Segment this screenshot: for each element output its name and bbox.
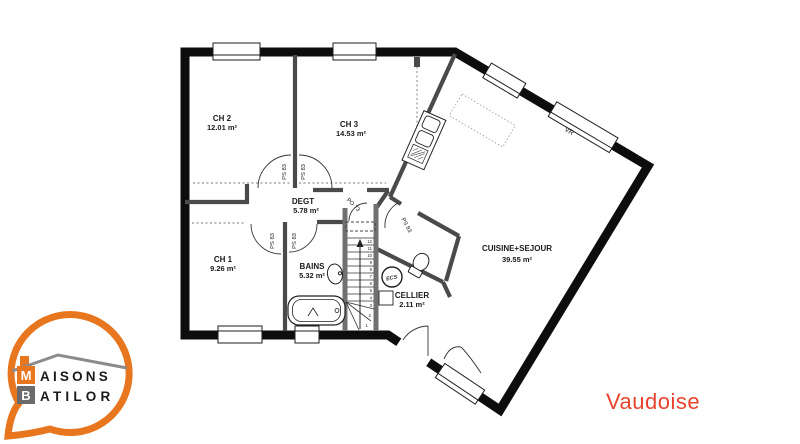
svg-text:CELLIER: CELLIER (395, 291, 429, 300)
svg-text:9.26 m²: 9.26 m² (210, 264, 236, 273)
svg-text:PS 83: PS 83 (282, 164, 288, 180)
svg-text:CH 2: CH 2 (213, 114, 232, 123)
logo-word-maisons: AISONS (40, 369, 111, 384)
room-label-bains: BAINS 5.32 m² (299, 262, 325, 280)
svg-text:DEGT: DEGT (292, 197, 314, 206)
logo-word-batilor: ATILOR (40, 389, 114, 404)
svg-text:B: B (21, 388, 30, 403)
svg-text:5.32 m²: 5.32 m² (299, 271, 325, 280)
bathtub (288, 296, 345, 325)
svg-text:CH 1: CH 1 (214, 255, 233, 264)
svg-text:2.11 m²: 2.11 m² (399, 300, 425, 309)
svg-text:14.53 m²: 14.53 m² (336, 129, 367, 138)
svg-text:10: 10 (367, 253, 372, 258)
svg-text:12.01 m²: 12.01 m² (207, 123, 238, 132)
svg-text:CUISINE+SEJOUR: CUISINE+SEJOUR (482, 244, 552, 253)
svg-text:PS 83: PS 83 (292, 233, 298, 249)
plan-name: Vaudoise (606, 389, 700, 415)
floor-plan-page: 12 11 10 9 8 7 6 5 4 3 2 1 VR (0, 0, 800, 444)
svg-text:PS 83: PS 83 (301, 164, 307, 180)
svg-text:39.55 m²: 39.55 m² (502, 255, 533, 264)
svg-text:CH 3: CH 3 (340, 120, 359, 129)
svg-text:5.78 m²: 5.78 m² (293, 206, 319, 215)
window-bottom-ch1 (218, 326, 262, 343)
brand-logo: M AISONS B ATILOR (8, 315, 129, 436)
svg-text:M: M (21, 368, 32, 383)
svg-text:PS 83: PS 83 (270, 233, 276, 249)
floor-plan-drawing: 12 11 10 9 8 7 6 5 4 3 2 1 VR (0, 0, 800, 444)
window-bottom-bains (295, 326, 319, 343)
window-top-ch2 (213, 43, 260, 60)
window-top-ch3 (333, 43, 376, 60)
svg-text:12: 12 (367, 239, 372, 244)
room-label-cellier: CELLIER 2.11 m² (395, 291, 429, 309)
svg-text:BAINS: BAINS (300, 262, 326, 271)
svg-text:11: 11 (368, 246, 373, 251)
